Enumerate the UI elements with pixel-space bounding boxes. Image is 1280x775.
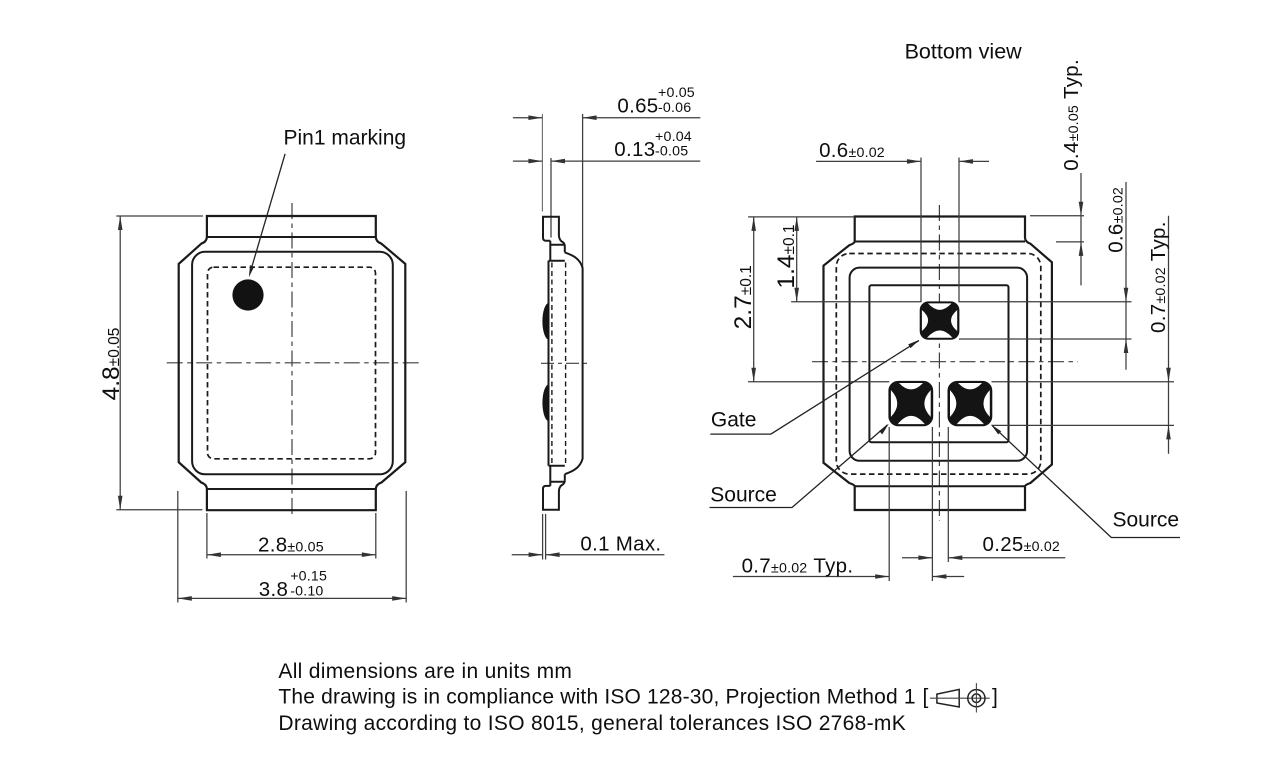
svg-text:]: ]: [992, 686, 998, 709]
svg-text:Source: Source: [710, 484, 777, 507]
svg-text:Source: Source: [1113, 508, 1180, 531]
svg-text:Gate: Gate: [711, 409, 757, 432]
svg-text:0.13: 0.13: [614, 138, 655, 161]
svg-text:Bottom view: Bottom view: [905, 40, 1023, 64]
svg-text:Drawing according to ISO 8015,: Drawing according to ISO 8015, general t…: [278, 712, 906, 735]
svg-text:3.8: 3.8: [259, 578, 288, 601]
svg-text:0.1 Max.: 0.1 Max.: [580, 532, 661, 555]
svg-text:+0.05: +0.05: [658, 85, 695, 101]
svg-text:[: [: [923, 686, 929, 709]
svg-text:All dimensions are in units mm: All dimensions are in units mm: [278, 660, 572, 683]
svg-text:+0.15: +0.15: [290, 569, 327, 585]
svg-text:-0.10: -0.10: [290, 583, 323, 599]
svg-text:The drawing is in compliance w: The drawing is in compliance with ISO 12…: [278, 686, 915, 709]
svg-text:Pin1 marking: Pin1 marking: [284, 127, 407, 150]
svg-text:-0.06: -0.06: [658, 100, 691, 116]
svg-text:-0.05: -0.05: [655, 143, 688, 159]
svg-text:0.65: 0.65: [617, 95, 658, 118]
